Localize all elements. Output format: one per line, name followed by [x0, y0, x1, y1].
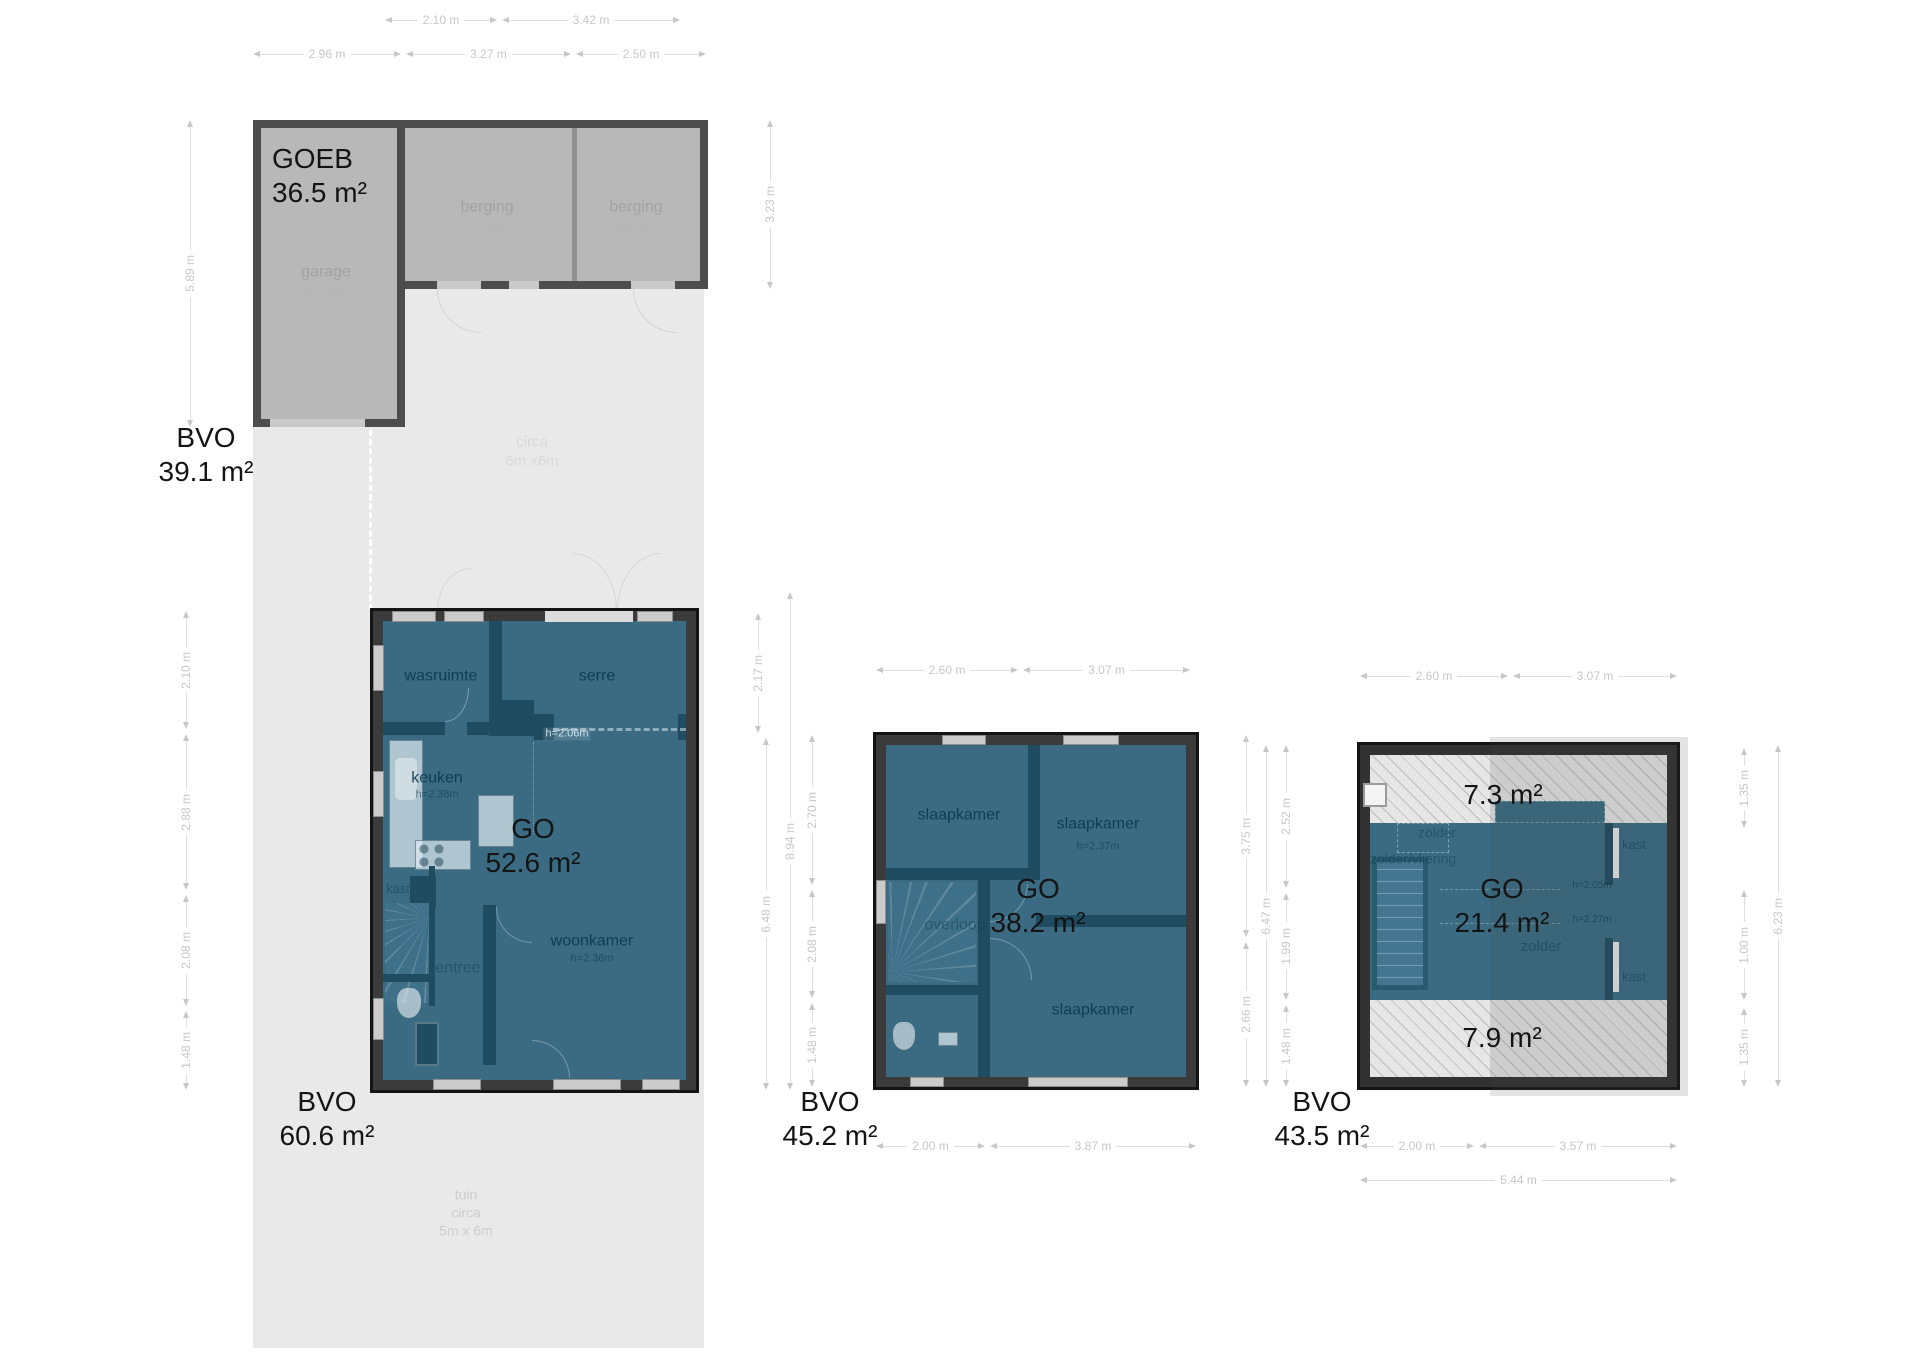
- room-label-serre: serre: [579, 666, 615, 685]
- room-label-kast-top: kast: [1622, 837, 1646, 853]
- bvo-area: 43.5 m²: [1275, 1119, 1370, 1153]
- bvo-label-attic: BVO 43.5 m²: [1275, 1085, 1370, 1153]
- window: [910, 1077, 944, 1087]
- window: [433, 1079, 481, 1090]
- room-label-kast-bottom: kast: [1622, 969, 1646, 985]
- note-line: 5m x 6m: [439, 1222, 493, 1240]
- window: [392, 611, 436, 622]
- dim-vertical: 2.17 m: [752, 613, 764, 733]
- go-area: 52.6 m²: [486, 846, 581, 880]
- bvo-label-ground-floor: BVO 60.6 m²: [280, 1085, 375, 1153]
- window: [373, 998, 384, 1040]
- dim-horizontal: 2.00 m: [876, 1140, 985, 1152]
- dim-vertical: 3.23 m: [764, 120, 776, 289]
- room-label-zolder-main: zolder: [1521, 938, 1562, 956]
- sink: [938, 1032, 958, 1046]
- room-height-woonkamer: h=2.36m: [570, 952, 613, 965]
- dim-vertical: 1.35 m: [1738, 1008, 1750, 1087]
- bvo-label-outbuilding: BVO 39.1 m²: [159, 421, 254, 489]
- dim-horizontal: 5.44 m: [1360, 1174, 1677, 1186]
- bvo-area: 39.1 m²: [159, 455, 254, 489]
- toilet: [397, 988, 421, 1018]
- partition-wall: [572, 128, 577, 281]
- dim-horizontal: 2.50 m: [576, 48, 706, 60]
- partition-wall: [978, 880, 990, 1077]
- door-opening: [437, 281, 481, 289]
- outbuilding-title: GOEB 36.5 m²: [272, 142, 367, 210]
- toilet: [893, 1022, 915, 1050]
- window: [553, 1079, 621, 1090]
- bvo-text: BVO: [280, 1085, 375, 1119]
- bvo-text: BVO: [783, 1085, 878, 1119]
- dim-horizontal: 3.57 m: [1479, 1140, 1677, 1152]
- room-label-berging-right: berging: [609, 197, 662, 216]
- dim-vertical: 2.66 m: [1240, 942, 1252, 1087]
- dim-vertical: 5.89 m: [184, 120, 196, 427]
- room-height-keuken: h=2.38m: [415, 788, 458, 801]
- dim-horizontal: 2.96 m: [253, 48, 401, 60]
- dim-vertical: 2.88 m: [180, 734, 192, 890]
- room-label-overloop: overloop: [924, 915, 985, 934]
- bvo-text: BVO: [1275, 1085, 1370, 1119]
- dim-horizontal: 3.07 m: [1023, 664, 1190, 676]
- room-height-garage: h=2.39m: [304, 284, 347, 297]
- terrain-dashed-path: [369, 430, 372, 610]
- room-height-berging-right: h=2.23m: [614, 220, 657, 233]
- room-label-zolder-left: zolder: [1418, 825, 1456, 842]
- window: [373, 771, 384, 817]
- room-height-slaapkamer-2: h=2.37m: [1076, 840, 1119, 853]
- partition-wall: [383, 974, 435, 982]
- window: [373, 645, 384, 691]
- dim-vertical: 2.08 m: [806, 890, 818, 998]
- dim-vertical: 8.94 m: [784, 592, 796, 1090]
- room-label-berging-left: berging: [460, 197, 513, 216]
- outbuilding-title-text: GOEB: [272, 142, 367, 176]
- bvo-label-first-floor: BVO 45.2 m²: [783, 1085, 878, 1153]
- stair-railing: [429, 866, 435, 1006]
- go-area-label-ground-floor: GO 52.6 m²: [486, 812, 581, 880]
- outbuilding-area-text: 36.5 m²: [272, 176, 367, 210]
- terrain-size-note: circa 6m x6m: [505, 433, 558, 471]
- opening-height-label: h=2.06m: [543, 727, 590, 740]
- dim-horizontal: 2.10 m: [385, 14, 497, 26]
- height-label: h=2.05m: [1572, 880, 1611, 892]
- window: [1028, 1077, 1128, 1087]
- dim-vertical: 1.35 m: [1738, 748, 1750, 828]
- bvo-area: 60.6 m²: [280, 1119, 375, 1153]
- window: [642, 1079, 680, 1090]
- dim-vertical: 6.48 m: [760, 738, 772, 1090]
- dim-vertical: 6.23 m: [1772, 745, 1784, 1087]
- skylight-icon: [1363, 783, 1387, 807]
- dim-vertical: 1.48 m: [1280, 1005, 1292, 1087]
- room-label-kast: kast: [386, 881, 410, 897]
- dim-horizontal: 2.60 m: [876, 664, 1018, 676]
- garage-door-opening: [270, 419, 365, 427]
- note-line: circa: [439, 1204, 493, 1222]
- utility-closet: [415, 1022, 439, 1066]
- partition-wall: [489, 700, 534, 736]
- room-label-woonkamer: woonkamer: [551, 931, 634, 950]
- bvo-text: BVO: [159, 421, 254, 455]
- room-label-garage: garage: [301, 262, 351, 281]
- dim-vertical: 1.48 m: [180, 1011, 192, 1090]
- kitchen-stove: [415, 840, 471, 870]
- go-text: GO: [486, 812, 581, 846]
- note-line: circa: [505, 433, 558, 452]
- go-area-label-first-floor: GO 38.2 m²: [991, 872, 1086, 940]
- window: [1063, 735, 1119, 745]
- dim-horizontal: 3.87 m: [990, 1140, 1196, 1152]
- room-label-slaapkamer-1: slaapkamer: [918, 805, 1001, 824]
- dim-horizontal: 3.27 m: [406, 48, 571, 60]
- note-line: tuin: [439, 1186, 493, 1204]
- dim-horizontal: 2.60 m: [1360, 670, 1508, 682]
- dim-vertical: 3.75 m: [1240, 735, 1252, 937]
- dim-vertical: 2.70 m: [806, 735, 818, 885]
- dim-vertical: 1.48 m: [806, 1003, 818, 1087]
- bvo-area: 45.2 m²: [783, 1119, 878, 1153]
- room-label-slaapkamer-3: slaapkamer: [1052, 1000, 1135, 1019]
- room-label-keuken: keuken: [411, 768, 463, 787]
- dim-vertical: 1.00 m: [1738, 890, 1750, 1000]
- room-label-vliering: zolder/vliering: [1370, 851, 1456, 868]
- dim-vertical: 2.10 m: [180, 611, 192, 729]
- go-area: 38.2 m²: [991, 906, 1086, 940]
- floorplan-sheet: GOEB 36.5 m² garage h=2.39m berging h=2.…: [0, 0, 1920, 1358]
- window: [444, 611, 484, 622]
- garden-size-note: tuin circa 5m x 6m: [439, 1186, 493, 1241]
- room-label-wasruimte: wasruimte: [405, 666, 478, 685]
- go-area-label-attic: GO 21.4 m²: [1455, 872, 1550, 940]
- dim-vertical: 2.52 m: [1280, 745, 1292, 888]
- attic-top-area-label: 7.3 m²: [1463, 778, 1542, 812]
- staircase: [1372, 857, 1428, 990]
- attic-bottom-area-label: 7.9 m²: [1462, 1021, 1541, 1055]
- partition-wall: [467, 722, 489, 735]
- dim-vertical: 2.08 m: [180, 895, 192, 1006]
- partition-wall: [383, 722, 445, 735]
- room-height-berging-left: h=2.23m: [465, 220, 508, 233]
- partition-wall: [678, 714, 686, 740]
- room-label-slaapkamer-2: slaapkamer: [1057, 814, 1140, 833]
- dim-horizontal: 3.07 m: [1513, 670, 1677, 682]
- dim-vertical: 1.99 m: [1280, 893, 1292, 1000]
- dim-horizontal: 2.00 m: [1360, 1140, 1474, 1152]
- note-line: 6m x6m: [505, 452, 558, 471]
- window: [876, 880, 886, 924]
- door-opening: [509, 281, 539, 289]
- room-label-entree: entree: [435, 958, 480, 977]
- height-label: h=2.27m: [1572, 914, 1611, 926]
- go-text: GO: [991, 872, 1086, 906]
- partition-wall: [886, 985, 978, 995]
- window: [942, 735, 986, 745]
- partition-wall: [483, 905, 496, 1065]
- dim-vertical: 6.47 m: [1260, 745, 1272, 1087]
- go-area: 21.4 m²: [1455, 906, 1550, 940]
- door-opening: [631, 281, 675, 289]
- dim-horizontal: 3.42 m: [502, 14, 680, 26]
- window: [637, 611, 673, 622]
- go-text: GO: [1455, 872, 1550, 906]
- partition-wall: [1028, 745, 1040, 880]
- door-opening: [545, 611, 633, 622]
